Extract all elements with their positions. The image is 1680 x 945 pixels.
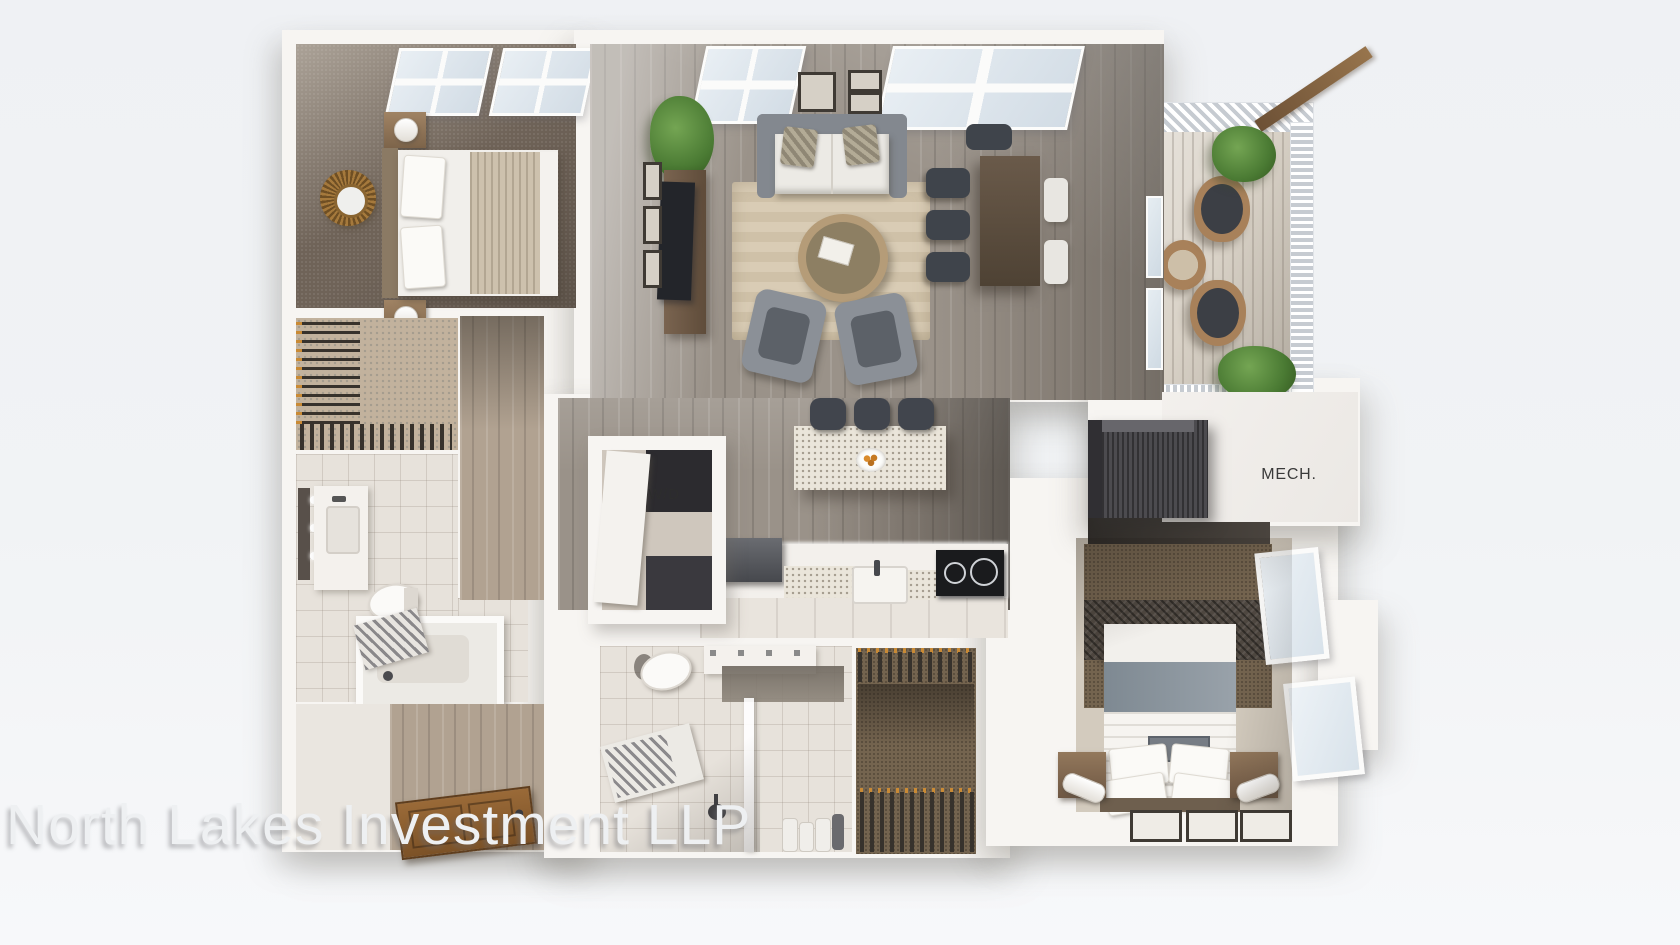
balcony-door-glass-1: [1146, 196, 1163, 278]
sofa-pillow-1: [780, 126, 818, 168]
wicker-chair-1: [1194, 176, 1250, 242]
mechanical-room-label: MECH.: [1246, 466, 1332, 484]
bedroom1-window-1: [385, 48, 493, 116]
kitchen-faucet: [874, 560, 880, 576]
kitchen-sink: [852, 566, 908, 604]
kitchen-cabinet-face: [700, 598, 1008, 638]
fruit: [861, 453, 881, 467]
floor-plan-canvas: W/D MECH. North Lak: [0, 0, 1680, 945]
cooktop: [936, 550, 1004, 596]
bedroom1-pillow-1: [400, 155, 446, 220]
sunburst-mirror-glass: [334, 184, 368, 218]
washer-dryer-stack-bottom: [646, 556, 712, 610]
gallery-frame-3: [643, 250, 662, 288]
closet1-hanging-clothes-bottom: [300, 424, 452, 450]
sofa-pillow-2: [842, 124, 880, 166]
sofa-arm-left: [757, 114, 775, 198]
tv-screen: [657, 181, 695, 300]
bedroom2-headboard: [1104, 624, 1236, 662]
dining-chair-white-2: [1044, 240, 1068, 284]
dining-chair-white-1: [1044, 178, 1068, 222]
closet1-hanging-clothes-left: [300, 322, 360, 424]
bathroom1-faucet: [332, 496, 346, 502]
bathroom2-faucet-knobs: [710, 650, 810, 656]
shower-bottle-4: [832, 814, 844, 850]
wicker-chair-2: [1190, 280, 1246, 346]
bathtub-faucet: [383, 671, 393, 681]
armchair-2-seat: [849, 309, 902, 368]
fruit-bowl: [856, 448, 886, 472]
dining-chair-dark-1: [926, 168, 970, 198]
bathroom1-vanity: [314, 486, 368, 590]
closet2-hanging-clothes-top: [858, 652, 974, 682]
floor-frame-1: [1130, 810, 1182, 842]
bedroom2-window-2: [1283, 677, 1365, 782]
gallery-frame-1: [643, 162, 662, 200]
bedroom2-window-1: [1254, 547, 1329, 665]
wicker-chair-2-cushion: [1197, 288, 1239, 338]
cooktop-burner-1: [944, 562, 966, 584]
wicker-chair-1-cushion: [1201, 184, 1243, 234]
bar-stool-2: [854, 398, 890, 430]
bedroom1-blanket: [470, 152, 540, 294]
shower-bottle-3: [815, 818, 831, 852]
sofa-back: [757, 114, 907, 136]
dining-table: [980, 156, 1040, 286]
floor-frame-3: [1240, 810, 1292, 842]
counter-granite-1: [784, 566, 854, 598]
sofa-cushion-divider: [831, 134, 833, 194]
washer-dryer-label: W/D: [634, 486, 694, 503]
hallway-wood-floor: [460, 316, 544, 600]
watermark-text: North Lakes Investment LLP: [6, 792, 751, 858]
shower-bottle-2: [799, 822, 814, 852]
dining-chair-dark-2: [926, 210, 970, 240]
wall-art-small-2: [848, 92, 882, 114]
bedroom1-window-2: [489, 48, 597, 116]
bedroom2-blanket: [1104, 662, 1236, 712]
gallery-frame-2: [643, 206, 662, 244]
dining-chair-dark-4: [966, 124, 1012, 150]
closet1-hanger-rod-left: [296, 322, 302, 424]
bedroom1-headboard: [382, 148, 398, 298]
closet2-shadow: [858, 684, 974, 746]
bathroom1-sink-basin: [326, 506, 360, 554]
balcony-railing-right: [1290, 122, 1314, 400]
bar-stool-3: [898, 398, 934, 430]
mechanical-unit-top: [1102, 420, 1194, 432]
bathroom1-mirror: [298, 488, 310, 580]
mechanical-unit: [1088, 420, 1208, 518]
balcony-plant-top: [1212, 126, 1276, 182]
sunburst-mirror: [320, 170, 376, 226]
bedroom1-lamp-1: [394, 118, 418, 142]
shower-bottle-1: [782, 818, 798, 852]
floor-frame-2: [1186, 810, 1238, 842]
bedroom1-pillow-2: [400, 225, 446, 290]
bedroom1-bed-foot: [540, 152, 558, 294]
wall-art-large: [798, 72, 836, 112]
closet2-hanging-clothes-bottom: [860, 792, 974, 852]
bar-stool-1: [810, 398, 846, 430]
wicker-side-table: [1160, 240, 1206, 290]
armchair-1-seat: [757, 306, 812, 367]
balcony-door-glass-2: [1146, 288, 1163, 370]
dining-chair-dark-3: [926, 252, 970, 282]
wall-art-small-1: [848, 70, 882, 92]
cooktop-burner-2: [970, 558, 998, 586]
sofa-arm-right: [889, 114, 907, 198]
